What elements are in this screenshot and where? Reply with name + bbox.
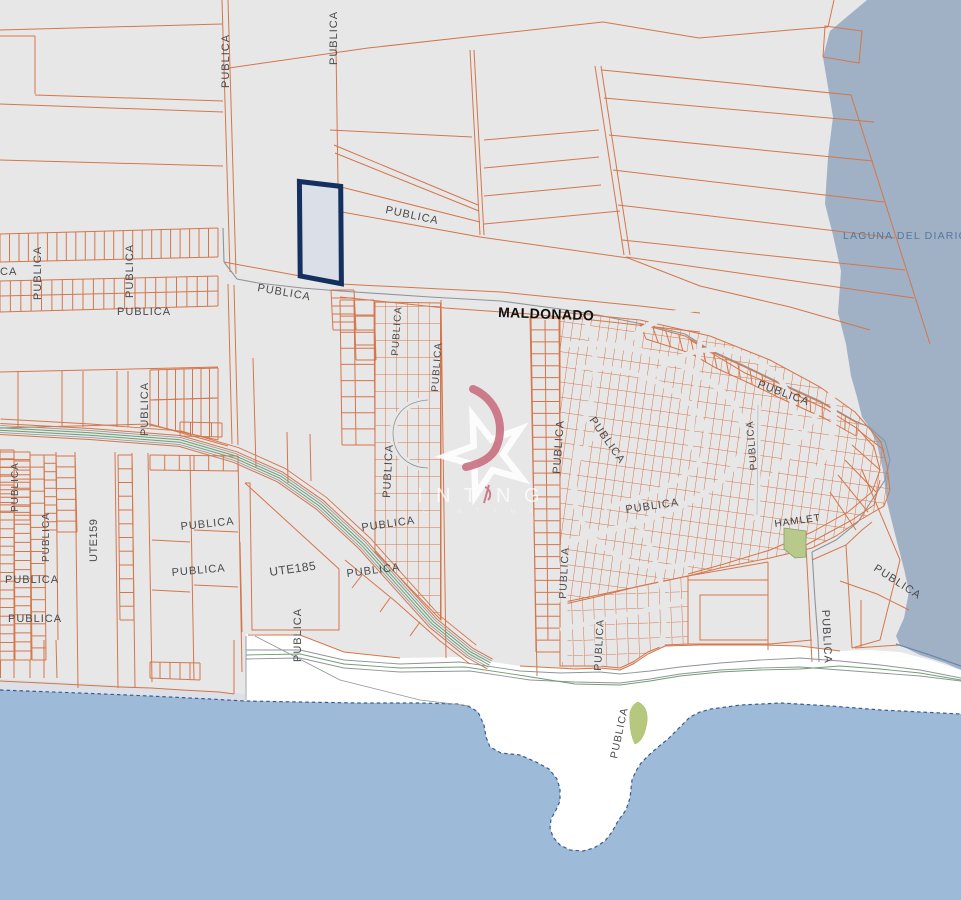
svg-text:PUBLICA: PUBLICA: [292, 608, 304, 662]
svg-text:I N T: I N T: [417, 485, 480, 507]
svg-text:CA: CA: [0, 266, 17, 278]
svg-text:PUBLICA: PUBLICA: [117, 306, 171, 318]
svg-text:PUBLICA: PUBLICA: [8, 613, 62, 625]
svg-text:UTE159: UTE159: [88, 519, 100, 562]
svg-text:PUBLICA: PUBLICA: [32, 246, 44, 300]
svg-text:PUBLICA: PUBLICA: [328, 11, 340, 65]
svg-text:PUBLICA: PUBLICA: [41, 512, 52, 562]
svg-text:PUBLICA: PUBLICA: [220, 34, 232, 88]
svg-text:MALDONADO: MALDONADO: [498, 304, 595, 323]
svg-text:PUBLICA: PUBLICA: [10, 462, 21, 512]
svg-text:PUBLICA: PUBLICA: [139, 382, 151, 436]
svg-text:PUBLICA: PUBLICA: [124, 244, 136, 298]
svg-text:LAGUNA DEL DIARIO: LAGUNA DEL DIARIO: [843, 230, 961, 242]
svg-text:N G: N G: [496, 485, 544, 507]
svg-text:C I N T A N A: C I N T A N A: [423, 508, 539, 515]
svg-text:PUBLICA: PUBLICA: [5, 574, 59, 586]
